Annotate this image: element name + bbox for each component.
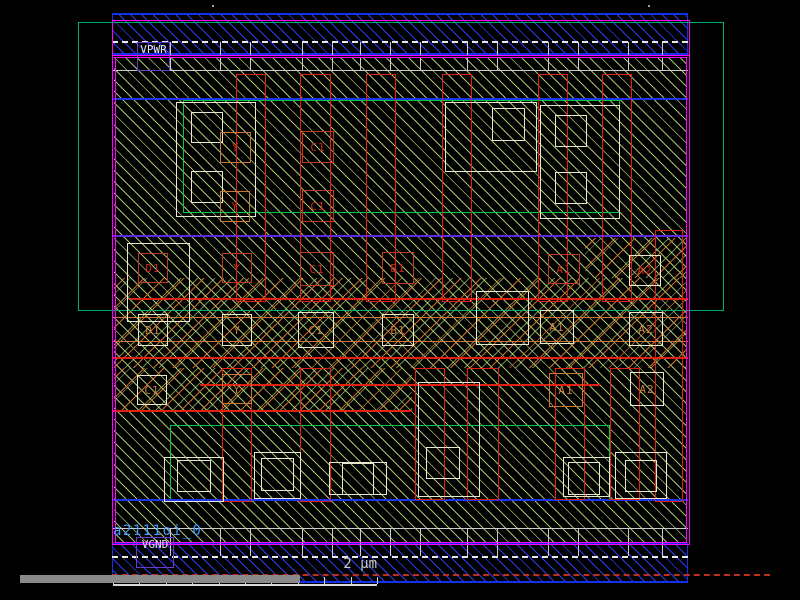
pin-label: C1	[144, 384, 159, 397]
pin-label: Y	[232, 141, 240, 154]
marker-dot	[648, 5, 650, 7]
pin-label-box: A2	[629, 312, 663, 346]
pin-label-box: C1	[300, 252, 334, 286]
vpwr-label-box: VPWR	[137, 42, 170, 71]
pin-label: D1	[145, 324, 160, 337]
pin-label: Y	[233, 324, 241, 337]
pin-label: B1	[390, 324, 405, 337]
layout-canvas[interactable]: C1C1YYD1YC1B1A1A2D1YC1B1A1A2C1YA1A2 VPWR…	[0, 0, 800, 600]
vpwr-label: VPWR	[140, 43, 167, 56]
pin-label-box: B1	[382, 252, 414, 284]
pin-label-box: C1	[137, 375, 167, 405]
vgnd-label-box: VGND	[136, 537, 174, 568]
pin-label: A1	[556, 263, 571, 276]
pin-label-box: A1	[549, 373, 583, 407]
pin-label: Y	[233, 383, 241, 396]
pin-label-box: Y	[220, 191, 250, 222]
vgnd-label: VGND	[142, 538, 169, 551]
rail-centerline	[112, 556, 688, 558]
pin-label: Y	[231, 200, 239, 213]
pin-label-box: A1	[540, 310, 574, 344]
pin-label-box: D1	[138, 314, 168, 346]
pin-label-box: A2	[629, 255, 661, 286]
marker-dot	[212, 5, 214, 7]
pin-label-box: Y	[222, 253, 252, 283]
pin-label-box: B1	[382, 314, 414, 346]
pin-label-box: Y	[222, 374, 252, 404]
pin-label: A2	[639, 383, 654, 396]
pin-label: A1	[558, 384, 573, 397]
pin-label: A2	[638, 323, 653, 336]
pin-label: A1	[549, 321, 564, 334]
pin-label: A2	[637, 264, 652, 277]
pin-label: D1	[145, 262, 160, 275]
cell-boundary	[115, 57, 687, 543]
pin-label-box: D1	[138, 253, 168, 283]
pin-label: B1	[390, 262, 405, 275]
pin-label: C1	[309, 263, 324, 276]
scale-bar-ruler	[113, 577, 377, 586]
pin-label-box: A2	[630, 372, 664, 406]
pin-label: C1	[310, 141, 325, 154]
pin-label: Y	[233, 262, 241, 275]
pin-label-box: Y	[220, 132, 251, 163]
pin-label-box: C1	[302, 190, 334, 222]
pin-label: C1	[308, 324, 323, 337]
pin-label: C1	[310, 200, 325, 213]
pin-label-box: Y	[222, 314, 252, 346]
pin-label-box: C1	[302, 131, 334, 163]
ruler-tick	[377, 577, 378, 584]
pin-label-box: A1	[548, 254, 580, 284]
scale-bar-label: 2 µm	[300, 556, 377, 572]
cell-instance-label: a2111oi_0	[113, 523, 202, 539]
pin-label-box: C1	[298, 312, 334, 348]
